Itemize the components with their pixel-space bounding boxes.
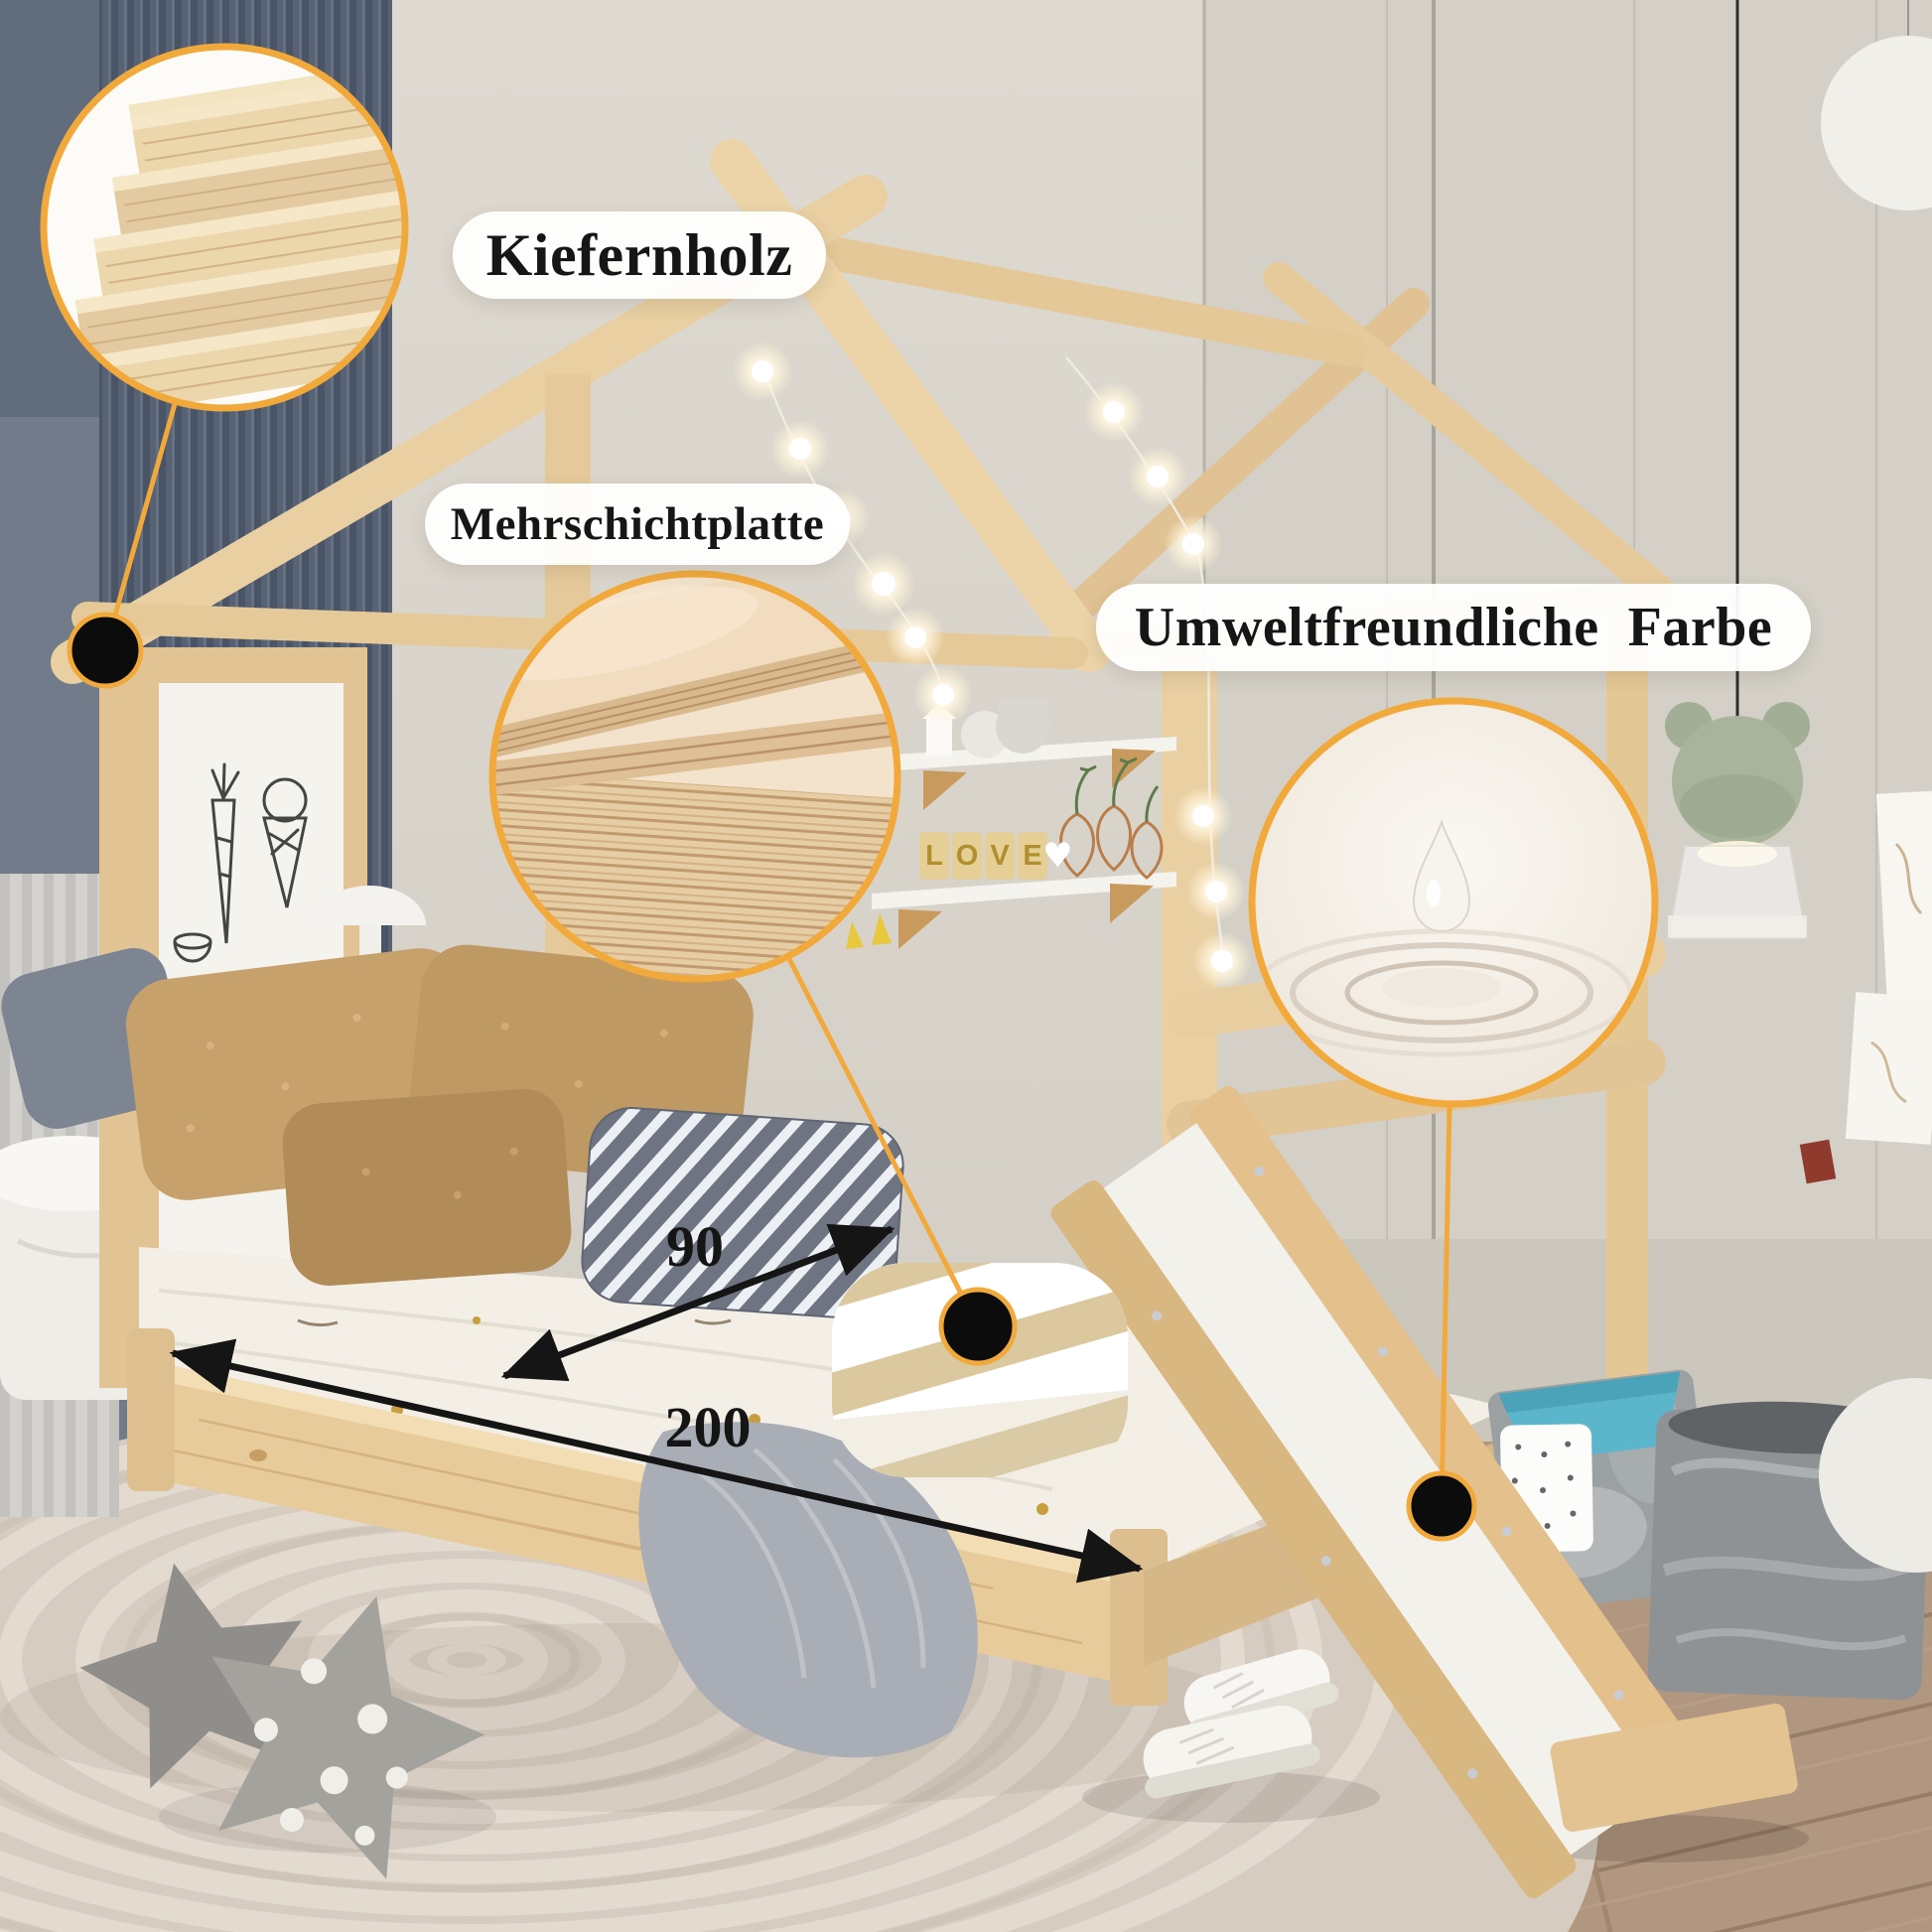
dimension-width: 90 — [635, 1213, 755, 1280]
letter-block: V — [985, 832, 1015, 880]
dimension-length: 200 — [623, 1394, 792, 1460]
label-pine: Kiefernholz — [453, 211, 826, 299]
room-scene — [0, 0, 1932, 1932]
bed-corner-post-left — [127, 1328, 175, 1491]
callout-dot-paint — [1409, 1473, 1474, 1539]
lamp-shade-band — [1668, 915, 1807, 937]
heart-icon: ♥ — [1042, 836, 1072, 876]
label-paint: Umweltfreundliche Farbe — [1096, 584, 1811, 671]
pillow-tan-front — [280, 1086, 574, 1288]
wood-knot — [249, 1449, 267, 1461]
callout-dot-pine — [69, 615, 141, 686]
label-plywood: Mehrschichtplatte — [425, 483, 850, 565]
annotated-product-photo: Kiefernholz Mehrschichtplatte Umweltfreu… — [0, 0, 1932, 1932]
love-letter-blocks: L O V E — [919, 832, 1047, 880]
milk-drop-inset — [1252, 701, 1655, 1104]
letter-block: O — [952, 832, 982, 880]
letter-block: L — [919, 832, 949, 880]
callout-dot-slats — [941, 1290, 1015, 1363]
